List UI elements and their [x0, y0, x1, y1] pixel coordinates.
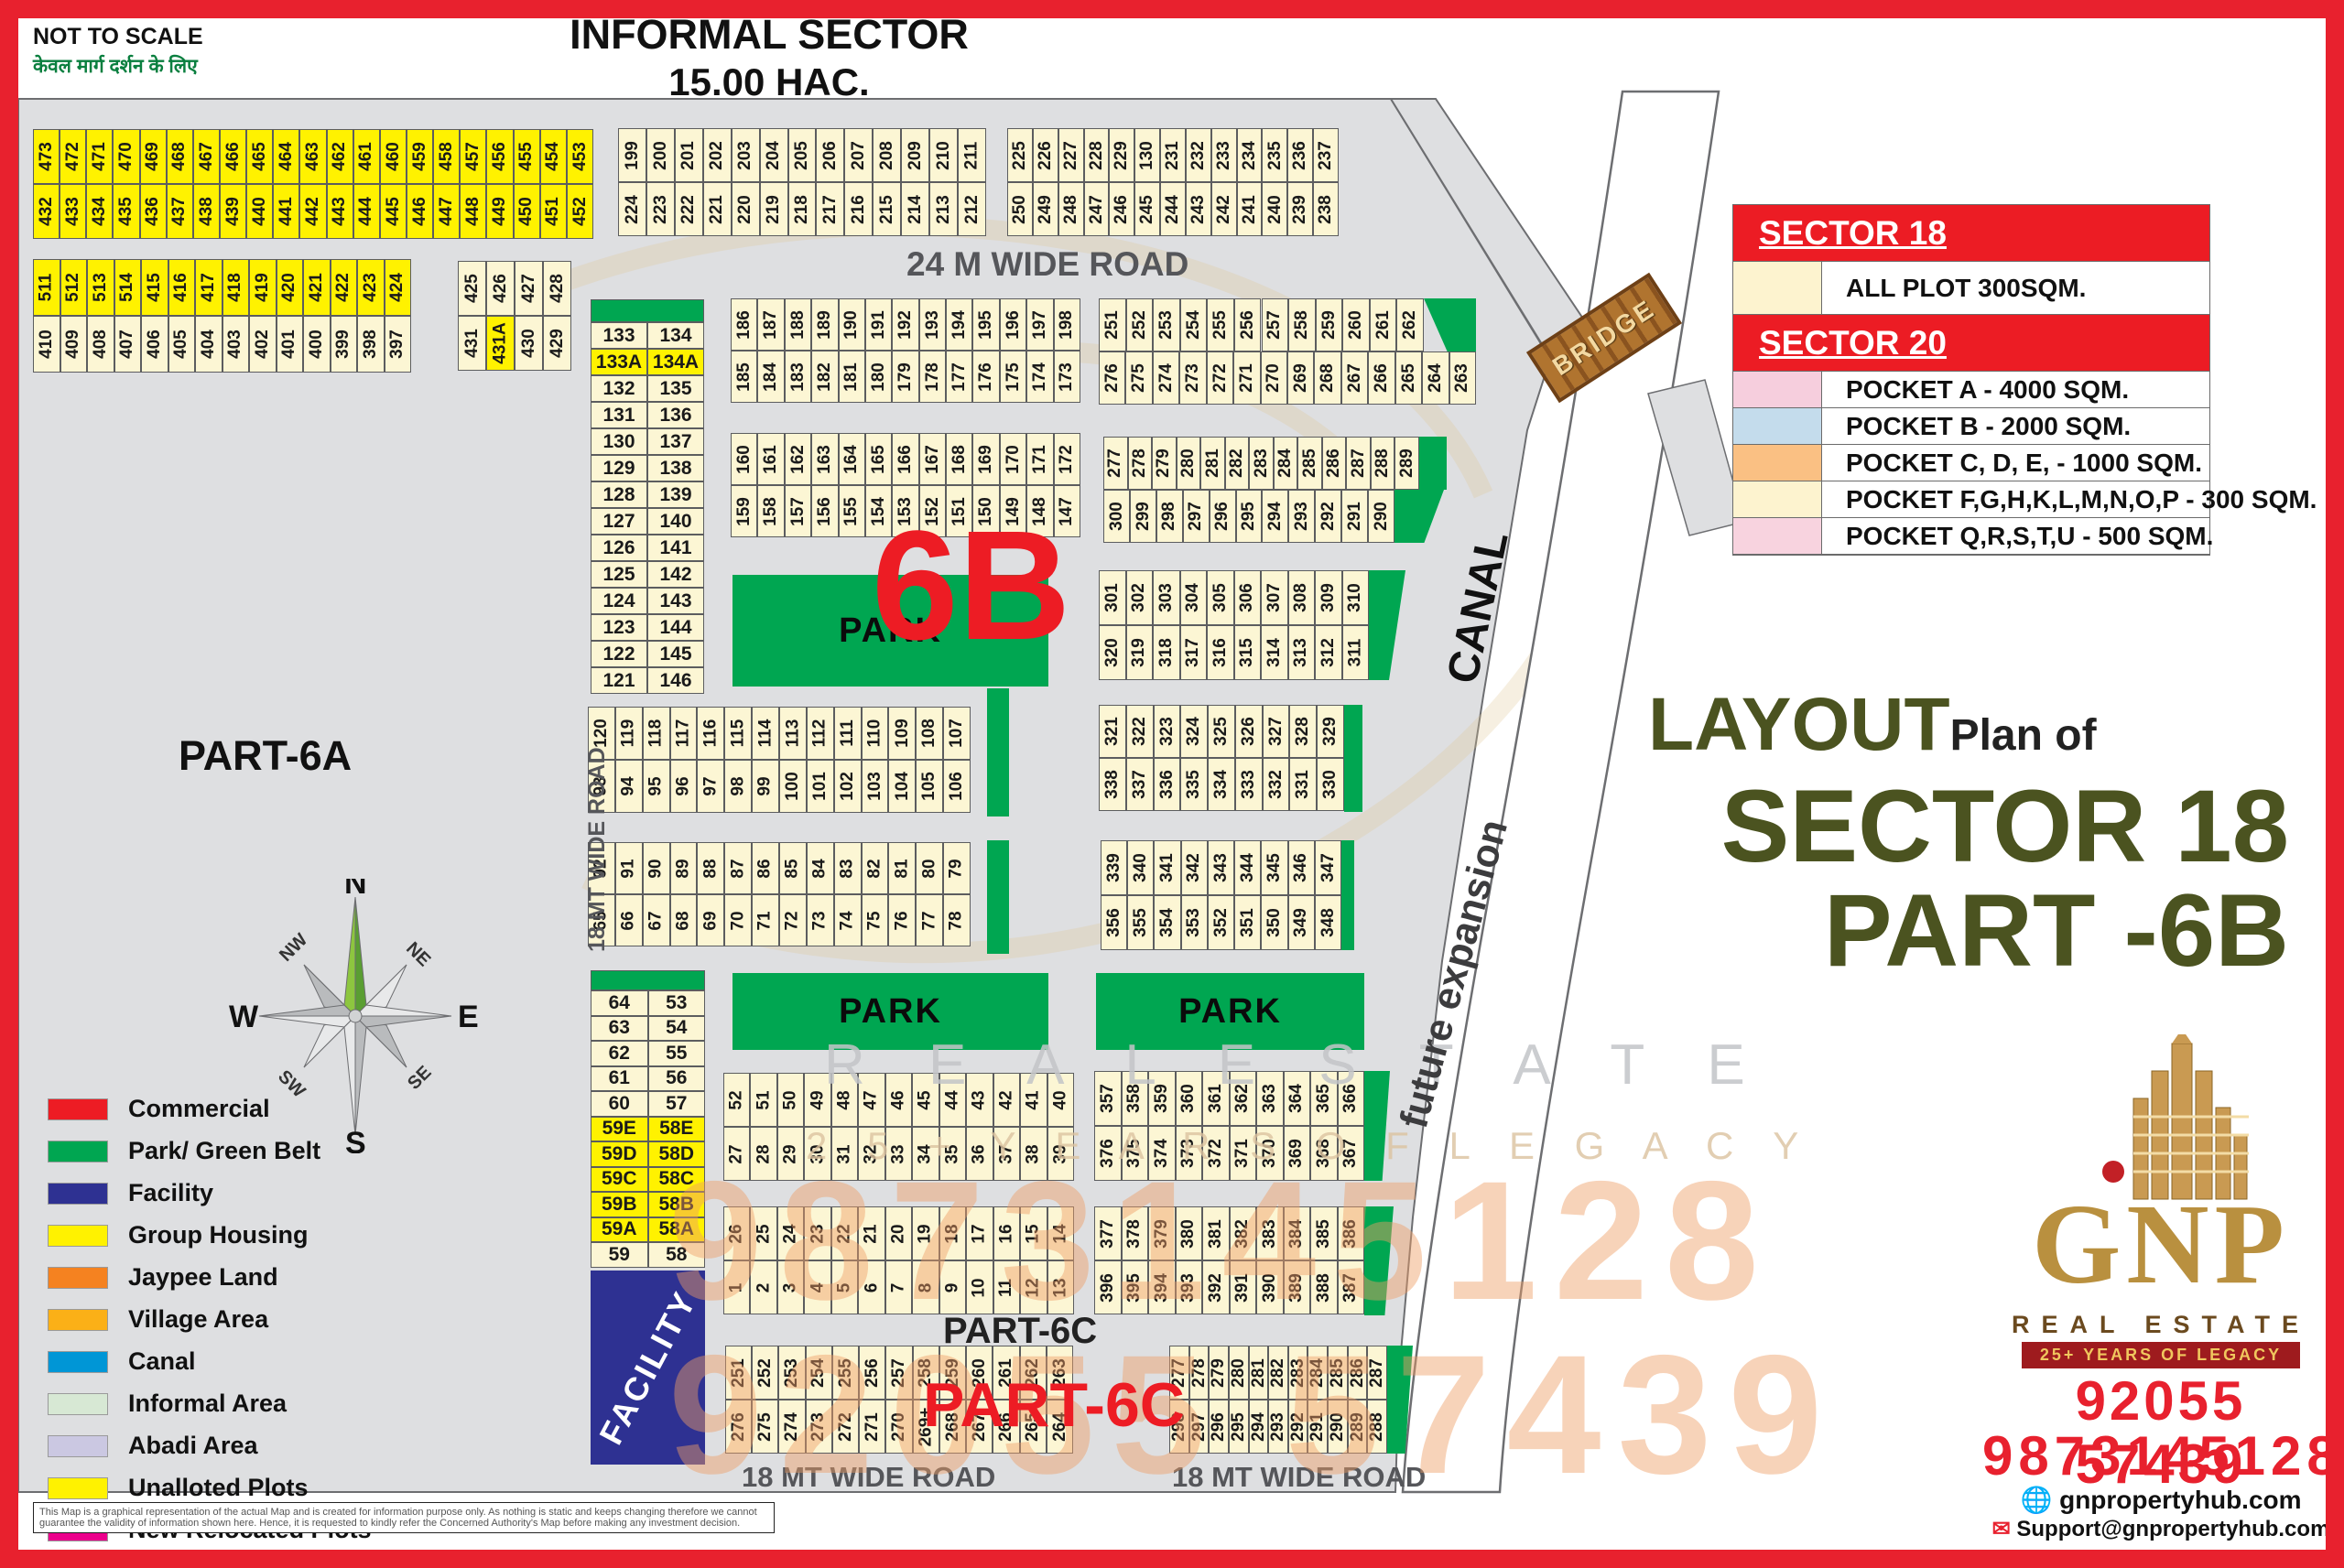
- plot-number: 402: [253, 330, 273, 359]
- plot-number: 264: [1426, 363, 1446, 393]
- plot-cell: 21: [858, 1206, 884, 1260]
- plot-number: 124: [602, 590, 635, 612]
- plot-cell: 434: [86, 184, 113, 239]
- plot-number: 30: [808, 1144, 828, 1163]
- plot-number: 110: [864, 719, 884, 748]
- plot-cell: 286: [1348, 1346, 1368, 1400]
- plot-cell: 250: [1007, 182, 1033, 236]
- plot-cell: 94: [615, 760, 643, 813]
- plot-cell: 131: [591, 402, 647, 428]
- plot-cell: 472: [60, 129, 86, 184]
- plot-cell: 469: [140, 129, 167, 184]
- plot-cell: 301: [1099, 570, 1126, 625]
- plot-number: 226: [1036, 141, 1056, 170]
- plot-cell: 76: [888, 894, 916, 946]
- plot-number: 294: [1249, 1412, 1269, 1442]
- plot-cell: 167: [919, 433, 946, 485]
- plot-number: 15: [1024, 1224, 1044, 1243]
- plot-cell: 113: [779, 707, 807, 760]
- plot-cell: 179: [892, 351, 918, 403]
- plot-number: 454: [543, 142, 563, 171]
- plot-cell: 58E: [648, 1117, 706, 1142]
- plot-number: 19: [916, 1224, 936, 1243]
- plot-number: 67: [646, 911, 667, 930]
- plot-cell: 90: [643, 842, 670, 894]
- plot-cell: 401: [277, 316, 304, 373]
- plot-cell: 395: [1122, 1260, 1149, 1314]
- legend-label: Facility: [128, 1179, 213, 1207]
- plot-cell: 197: [1026, 298, 1053, 351]
- plot-cell: 450: [514, 184, 540, 239]
- plot-number: 11: [996, 1278, 1016, 1296]
- plot-cell: 366: [1338, 1071, 1365, 1126]
- plot-number: 393: [1178, 1273, 1199, 1303]
- plot-number: 355: [1131, 908, 1151, 937]
- plot-number: 304: [1183, 583, 1203, 612]
- plot-cell: 81: [888, 842, 916, 894]
- plot-cell: 130: [1134, 128, 1160, 182]
- plot-number: 114: [755, 719, 776, 748]
- plot-cell: 442: [299, 184, 326, 239]
- plot-number: 58D: [658, 1143, 694, 1165]
- plot-number: 119: [619, 719, 639, 748]
- plot-cell: 334: [1208, 758, 1235, 811]
- plot-cell: 288: [1367, 1400, 1387, 1454]
- plot-cell: 180: [865, 351, 892, 403]
- plot-cell: 323: [1154, 705, 1181, 758]
- plot-number: 311: [1345, 639, 1365, 667]
- plot-number: 52: [727, 1090, 747, 1109]
- plot-number: 399: [333, 330, 353, 359]
- plot-number: 320: [1102, 638, 1123, 667]
- plot-number: 113: [783, 719, 803, 748]
- plot-number: 324: [1184, 717, 1204, 746]
- plot-number: 106: [947, 772, 967, 801]
- legend-label: Informal Area: [128, 1390, 287, 1418]
- plot-number: 427: [519, 274, 539, 303]
- plot-number: 400: [307, 330, 327, 359]
- plot-cell: 312: [1315, 625, 1342, 680]
- plot-cell: 318: [1153, 625, 1180, 680]
- plot-number: 372: [1206, 1139, 1226, 1168]
- plot-number: 416: [171, 273, 191, 302]
- plot-cell: 4: [804, 1260, 830, 1314]
- plot-cell: 348: [1315, 895, 1341, 950]
- plot-cell: 136: [647, 402, 704, 428]
- plot-number: 316: [1210, 638, 1231, 667]
- plot-number: 91: [619, 859, 639, 878]
- plot-number: 343: [1210, 853, 1231, 882]
- phone-number-2: 9873145128: [1982, 1424, 2339, 1487]
- plot-cell: 33: [885, 1127, 912, 1181]
- plot-cell: 88: [697, 842, 724, 894]
- sector-swatch: [1733, 372, 1822, 407]
- plot-number: 261: [1373, 310, 1394, 340]
- plot-number: 107: [947, 719, 967, 748]
- plot-cell: 252: [1126, 298, 1154, 351]
- plot-cell: 297: [1183, 490, 1210, 543]
- plot-number: 36: [970, 1144, 990, 1163]
- plot-number: 361: [1206, 1084, 1226, 1113]
- plot-cell: 451: [540, 184, 567, 239]
- plot-cell: 369: [1284, 1126, 1311, 1181]
- plot-cell: 463: [299, 129, 326, 184]
- compass-ne: NE: [402, 938, 434, 970]
- plot-cell: 424: [385, 259, 412, 316]
- plot-cell: 398: [357, 316, 385, 373]
- legend-item: Unalloted Plots: [48, 1474, 372, 1502]
- plot-number: 90: [646, 859, 667, 878]
- plot-number: 287: [1349, 449, 1369, 478]
- plot-number: 335: [1184, 770, 1204, 799]
- plot-cell: 295: [1229, 1400, 1249, 1454]
- plot-number: 368: [1314, 1139, 1334, 1168]
- plot-cell: 281: [1249, 1346, 1269, 1400]
- plot-cell: 101: [807, 760, 834, 813]
- plot-number: 79: [947, 859, 967, 878]
- plot-cell: 268: [1314, 351, 1340, 405]
- plot-number: 281: [1249, 1358, 1269, 1388]
- legend-swatch: [48, 1351, 108, 1373]
- plot-number: 225: [1010, 141, 1030, 170]
- plot-cell: 202: [703, 128, 732, 182]
- plot-cell: 58: [648, 1242, 706, 1268]
- plot-number: 22: [835, 1224, 855, 1243]
- plot-number: 470: [116, 142, 136, 171]
- plot-cell: 274: [1153, 351, 1179, 405]
- green-belt-patch: [987, 840, 1009, 954]
- plot-cell: 216: [844, 182, 873, 236]
- legend-item: Jaypee Land: [48, 1263, 372, 1292]
- plot-number: 139: [659, 484, 691, 506]
- plot-cell: 425: [458, 261, 486, 316]
- plot-number: 462: [330, 142, 350, 171]
- plot-cell: 388: [1310, 1260, 1338, 1314]
- plot-number: 117: [673, 719, 693, 748]
- plot-cell: 232: [1186, 128, 1211, 182]
- plot-cell: 111: [834, 707, 862, 760]
- plot-cell: 251: [725, 1346, 752, 1400]
- plot-number: 378: [1124, 1219, 1145, 1249]
- plot-cell: 315: [1234, 625, 1262, 680]
- plot-number: 406: [145, 330, 165, 359]
- plot-number: 55: [666, 1043, 687, 1065]
- plot-number: 278: [1130, 449, 1150, 478]
- plot-number: 270: [889, 1412, 909, 1442]
- plot-cell: 200: [646, 128, 675, 182]
- plot-cell: 165: [865, 433, 892, 485]
- plot-number: 317: [1183, 638, 1203, 667]
- plot-cell: 461: [353, 129, 380, 184]
- plot-cell: 56: [648, 1066, 706, 1092]
- plot-number: 98: [728, 776, 748, 795]
- plot-number: 442: [303, 197, 323, 226]
- plot-number: 234: [1240, 141, 1260, 170]
- website-text: gnpropertyhub.com: [2059, 1486, 2301, 1514]
- plot-cell: 254: [806, 1346, 832, 1400]
- plot-number: 447: [437, 197, 457, 226]
- plot-cell: 340: [1127, 840, 1154, 895]
- plot-cell: 376: [1094, 1126, 1122, 1181]
- plot-cell: 116: [697, 707, 724, 760]
- plot-number: 160: [734, 445, 754, 474]
- plot-number: 235: [1264, 141, 1285, 170]
- plot-cell: 453: [567, 129, 593, 184]
- plot-number: 437: [169, 197, 190, 226]
- plot-cell: 291: [1341, 490, 1368, 543]
- plot-number: 208: [877, 141, 897, 170]
- legend-swatch: [48, 1141, 108, 1162]
- plot-number: 18: [942, 1224, 962, 1243]
- sector-table-header: SECTOR 18: [1733, 205, 2209, 262]
- plot-number: 121: [602, 670, 635, 692]
- plot-cell: 273: [806, 1400, 832, 1454]
- compass-se: SE: [404, 1062, 435, 1093]
- plot-cell: 362: [1230, 1071, 1257, 1126]
- plot-cell: 100: [779, 760, 807, 813]
- plot-number: 395: [1124, 1273, 1145, 1303]
- plot-number: 32: [862, 1144, 882, 1163]
- plot-cell: 209: [901, 128, 929, 182]
- plot-number: 468: [169, 142, 190, 171]
- plot-cell: 256: [1234, 298, 1262, 351]
- plot-cell: 73: [807, 894, 834, 946]
- plot-number: 342: [1184, 853, 1204, 882]
- plot-cell: 319: [1126, 625, 1154, 680]
- plot-cell: 41: [1020, 1073, 1047, 1127]
- plot-cell: 123: [591, 614, 647, 641]
- plot-number: 293: [1268, 1412, 1288, 1442]
- plot-number: 193: [922, 310, 942, 340]
- plot-cell: 448: [460, 184, 486, 239]
- plot-number: 59D: [602, 1143, 637, 1165]
- plot-cell: 43: [966, 1073, 993, 1127]
- plot-number: 466: [223, 142, 244, 171]
- plot-number: 236: [1290, 141, 1310, 170]
- plot-number: 100: [783, 772, 803, 801]
- plot-number: 288: [1373, 449, 1393, 478]
- plot-cell: 325: [1208, 705, 1235, 758]
- plot-cell: 295: [1236, 490, 1263, 543]
- plot-number: 452: [570, 197, 590, 226]
- plot-number: 397: [387, 330, 407, 359]
- plot-cell: 260: [1342, 298, 1370, 351]
- plot-cell: 371: [1230, 1126, 1257, 1181]
- plot-number: 272: [1210, 363, 1230, 393]
- plot-cell: 466: [220, 129, 246, 184]
- plot-number: 87: [728, 859, 748, 878]
- plot-cell: 374: [1148, 1126, 1176, 1181]
- plot-number: 122: [602, 643, 635, 665]
- plot-cell: 332: [1263, 758, 1290, 811]
- plot-number: 322: [1130, 717, 1150, 746]
- plot-number: 85: [783, 859, 803, 878]
- plot-cell: 204: [760, 128, 788, 182]
- plot-cell: 282: [1268, 1346, 1288, 1400]
- plot-cell: 392: [1202, 1260, 1230, 1314]
- plot-cell: 178: [919, 351, 946, 403]
- plot-cell: 439: [220, 184, 246, 239]
- plot-cell: 393: [1176, 1260, 1203, 1314]
- plot-cell: 140: [647, 508, 704, 535]
- plot-block-c10: 3393403413423433443453463473563553543533…: [1101, 840, 1341, 950]
- plot-cell: 199: [618, 128, 646, 182]
- plot-number: 425: [462, 274, 483, 303]
- plot-cell: 428: [543, 261, 571, 316]
- plot-cell: 23: [804, 1206, 830, 1260]
- plot-cell: 207: [844, 128, 873, 182]
- plot-cell: 271: [1233, 351, 1260, 405]
- plot-cell: 105: [916, 760, 943, 813]
- plot-cell: 308: [1288, 570, 1316, 625]
- plot-cell: 367: [1338, 1126, 1365, 1181]
- plot-number: 3: [781, 1282, 801, 1292]
- plot-number: 80: [919, 859, 939, 878]
- plot-cell: 59D: [591, 1141, 648, 1167]
- plot-number: 116: [700, 719, 721, 748]
- plot-number: 115: [728, 719, 748, 748]
- plot-number: 273: [808, 1412, 829, 1442]
- plot-cell: 132: [591, 375, 647, 402]
- plot-cell: 289: [1348, 1400, 1368, 1454]
- plot-number: 136: [659, 405, 691, 427]
- plot-cell: 231: [1160, 128, 1186, 182]
- plot-block-c9: 9291908988878685848382818079656667686970…: [588, 842, 971, 946]
- park-mid: PARK: [732, 973, 1048, 1050]
- plot-number: 141: [659, 537, 691, 559]
- plot-number: 131: [602, 405, 635, 427]
- plot-number: 132: [602, 378, 635, 400]
- plot-number: 292: [1318, 502, 1339, 531]
- plot-cell: 145: [647, 641, 704, 667]
- plot-number: 212: [962, 195, 982, 224]
- plot-cell: 124: [591, 588, 647, 614]
- plot-cell: 440: [246, 184, 273, 239]
- plot-number: 238: [1316, 195, 1336, 224]
- plot-cell: 185: [731, 351, 757, 403]
- legend-label: Park/ Green Belt: [128, 1137, 320, 1165]
- plot-cell: 406: [141, 316, 168, 373]
- plot-number: 68: [673, 911, 693, 930]
- plot-number: 288: [1367, 1412, 1387, 1442]
- plot-cell: 7: [885, 1260, 912, 1314]
- plot-cell: 431A: [486, 316, 515, 371]
- plot-cell: 373: [1176, 1126, 1203, 1181]
- plot-number: 138: [659, 458, 691, 480]
- plot-number: 62: [609, 1043, 630, 1065]
- plot-cell: 382: [1230, 1206, 1257, 1260]
- sector-table-header: SECTOR 20: [1733, 315, 2209, 372]
- plot-number: 231: [1163, 141, 1183, 170]
- plot-number: 467: [196, 142, 216, 171]
- plot-cell: 128: [591, 481, 647, 508]
- legend-swatch: [48, 1309, 108, 1331]
- plot-cell: 106: [943, 760, 971, 813]
- plot-number: 276: [1102, 363, 1123, 393]
- plot-cell: 175: [1000, 351, 1026, 403]
- plot-cell: 248: [1058, 182, 1084, 236]
- plot-cell: 134: [647, 322, 704, 349]
- plot-cell: 52: [723, 1073, 750, 1127]
- plot-cell: 304: [1180, 570, 1208, 625]
- plot-cell: 290: [1368, 490, 1394, 543]
- plot-number: 424: [387, 273, 407, 302]
- plot-cell: 410: [33, 316, 60, 373]
- plot-cell: 293: [1288, 490, 1315, 543]
- plot-cell: 77: [916, 894, 943, 946]
- plot-number: 143: [659, 590, 691, 612]
- plot-cell: 390: [1256, 1260, 1284, 1314]
- plot-cell: 66: [615, 894, 643, 946]
- plot-cell: 280: [1229, 1346, 1249, 1400]
- plot-cell: 182: [811, 351, 838, 403]
- plot-cell: 133: [591, 322, 647, 349]
- plot-cell: 383: [1256, 1206, 1284, 1260]
- plot-cell: 349: [1288, 895, 1315, 950]
- plot-number: 186: [734, 310, 754, 340]
- plot-number: 471: [90, 142, 110, 171]
- plot-number: 41: [1024, 1090, 1044, 1109]
- plot-number: 59E: [602, 1118, 636, 1140]
- informal-sector-area: 15.00 HAC.: [476, 60, 1062, 104]
- plot-number: 144: [659, 617, 691, 639]
- plot-number: 514: [117, 273, 137, 302]
- plot-number: 20: [888, 1224, 908, 1243]
- plot-cell: 246: [1109, 182, 1134, 236]
- plot-number: 180: [869, 362, 889, 392]
- legend-label: Village Area: [128, 1305, 268, 1334]
- plot-cell: 183: [785, 351, 811, 403]
- plot-number: 4: [808, 1282, 828, 1292]
- road-18mt-label-right: 18 MT WIDE ROAD: [1172, 1461, 1426, 1494]
- plot-number: 448: [463, 197, 483, 226]
- sector-table-row: POCKET F,G,H,K,L,M,N,O,P - 300 SQM.: [1733, 481, 2209, 518]
- plot-number: 267: [1345, 363, 1365, 393]
- plot-number: 108: [919, 719, 939, 748]
- plot-number: 389: [1286, 1273, 1307, 1303]
- plot-cell: 27: [723, 1127, 750, 1181]
- plot-cell: 385: [1310, 1206, 1338, 1260]
- plot-cell: 447: [433, 184, 460, 239]
- map-legend: CommercialPark/ Green BeltFacilityGroup …: [48, 1095, 372, 1558]
- plot-number: 255: [836, 1358, 856, 1388]
- compass-w: W: [229, 1000, 259, 1034]
- plot-cell: 157: [785, 485, 811, 537]
- plot-cell: 16: [993, 1206, 1020, 1260]
- plot-number: 415: [145, 273, 165, 302]
- plot-number: 275: [755, 1412, 776, 1442]
- plot-cell: 86: [752, 842, 779, 894]
- plot-cell: 203: [732, 128, 760, 182]
- plot-cell: 336: [1154, 758, 1181, 811]
- plot-cell: 226: [1033, 128, 1058, 182]
- plot-number: 211: [962, 141, 982, 169]
- plot-number: 75: [864, 911, 884, 930]
- plot-number: 403: [225, 330, 245, 359]
- plot-cell: 422: [331, 259, 358, 316]
- plot-number: 69: [700, 911, 721, 930]
- plot-number: 158: [761, 497, 781, 526]
- plot-number: 165: [869, 445, 889, 474]
- legend-label: Canal: [128, 1347, 196, 1376]
- plot-number: 379: [1152, 1219, 1172, 1249]
- plot-number: 283: [1288, 1358, 1308, 1388]
- plot-cell: 8: [912, 1260, 939, 1314]
- plot-block-c12: 5251504948474645444342414027282930313233…: [723, 1073, 1074, 1181]
- legend-swatch: [48, 1435, 108, 1457]
- plot-number: 291: [1345, 502, 1365, 531]
- plot-number: 337: [1130, 770, 1150, 799]
